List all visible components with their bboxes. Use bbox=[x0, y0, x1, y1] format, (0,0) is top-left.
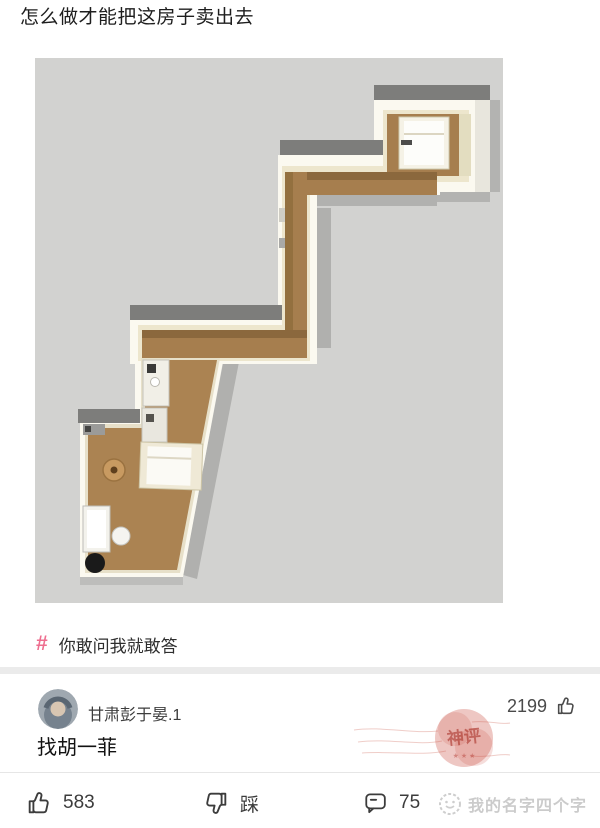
bedroom-furniture bbox=[399, 117, 449, 169]
comment-like-count: 2199 bbox=[507, 696, 547, 717]
stamp-label: 神评 bbox=[446, 725, 482, 748]
comment-like-button[interactable]: 2199 bbox=[507, 695, 577, 717]
topic-label: 你敢问我就敢答 bbox=[59, 632, 178, 657]
kitchen-fixtures bbox=[141, 360, 169, 453]
actionbar-divider bbox=[0, 772, 600, 773]
thumbs-up-icon bbox=[25, 789, 53, 817]
post-page: 怎么做才能把这房子卖出去 bbox=[0, 0, 600, 828]
post-title: 怎么做才能把这房子卖出去 bbox=[20, 6, 254, 30]
watermark-text: 我的名字四个字 bbox=[468, 792, 587, 816]
thumbs-down-icon bbox=[202, 789, 230, 817]
dislike-label: 踩 bbox=[240, 790, 259, 817]
section-separator bbox=[0, 667, 600, 674]
floor-plan-image[interactable] bbox=[35, 58, 503, 603]
topic-tag[interactable]: # 你敢问我就敢答 bbox=[36, 631, 178, 657]
god-comment-stamp: 神评 ★ ★ ★ bbox=[352, 694, 512, 782]
like-button[interactable]: 583 bbox=[25, 789, 95, 817]
comment-count: 75 bbox=[399, 792, 420, 814]
stamp-stars: ★ ★ ★ bbox=[453, 752, 476, 760]
thumbs-up-icon bbox=[555, 695, 577, 717]
hashtag-icon: # bbox=[36, 631, 48, 657]
watermark-face-icon bbox=[438, 792, 462, 816]
app-watermark: 我的名字四个字 bbox=[438, 792, 587, 816]
comment-bubble-icon bbox=[362, 789, 389, 816]
dislike-button[interactable]: 踩 bbox=[202, 789, 259, 817]
comment-button[interactable]: 75 bbox=[362, 789, 420, 816]
comment-text: 找胡一菲 bbox=[37, 731, 117, 760]
comment-username[interactable]: 甘肃彭于晏.1 bbox=[88, 701, 181, 725]
like-count: 583 bbox=[63, 792, 95, 814]
avatar[interactable] bbox=[38, 689, 78, 729]
